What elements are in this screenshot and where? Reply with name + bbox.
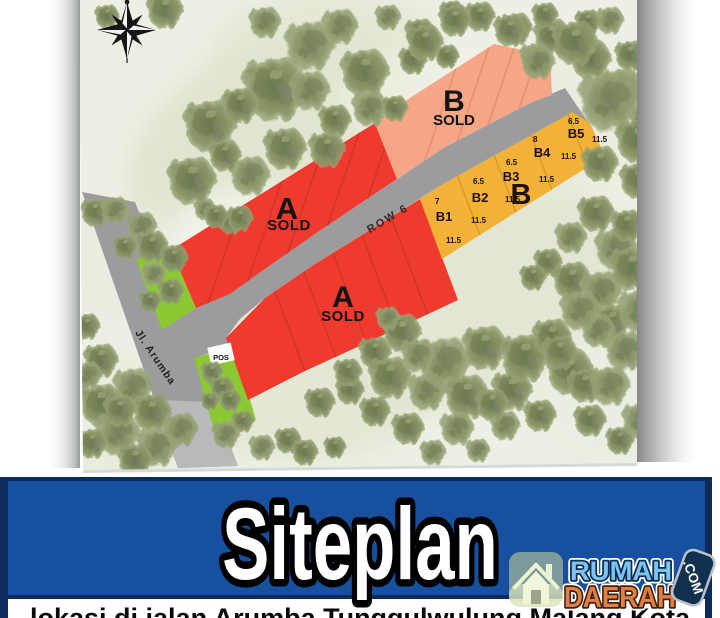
- svg-text:11.5: 11.5: [505, 195, 521, 204]
- svg-text:B5: B5: [568, 126, 585, 141]
- svg-text:POS: POS: [213, 353, 229, 362]
- svg-text:11.5: 11.5: [446, 236, 462, 245]
- svg-text:B1: B1: [436, 209, 453, 224]
- svg-text:B3: B3: [503, 169, 520, 184]
- svg-text:6.5: 6.5: [473, 177, 485, 186]
- svg-text:7: 7: [435, 197, 440, 206]
- svg-text:8: 8: [533, 135, 538, 144]
- svg-text:SOLD: SOLD: [267, 217, 311, 234]
- svg-text:B4: B4: [534, 145, 551, 160]
- svg-text:11.5: 11.5: [471, 216, 487, 225]
- svg-text:6.5: 6.5: [568, 117, 580, 126]
- svg-text:11.5: 11.5: [592, 135, 608, 144]
- svg-text:Siteplan: Siteplan: [222, 486, 498, 601]
- svg-text:DAERAH: DAERAH: [564, 582, 676, 614]
- svg-text:6.5: 6.5: [506, 158, 518, 167]
- svg-text:B2: B2: [472, 190, 489, 205]
- svg-text:SOLD: SOLD: [433, 112, 475, 129]
- svg-text:11.5: 11.5: [539, 175, 555, 184]
- svg-text:SOLD: SOLD: [321, 308, 365, 325]
- svg-text:11.5: 11.5: [561, 152, 577, 161]
